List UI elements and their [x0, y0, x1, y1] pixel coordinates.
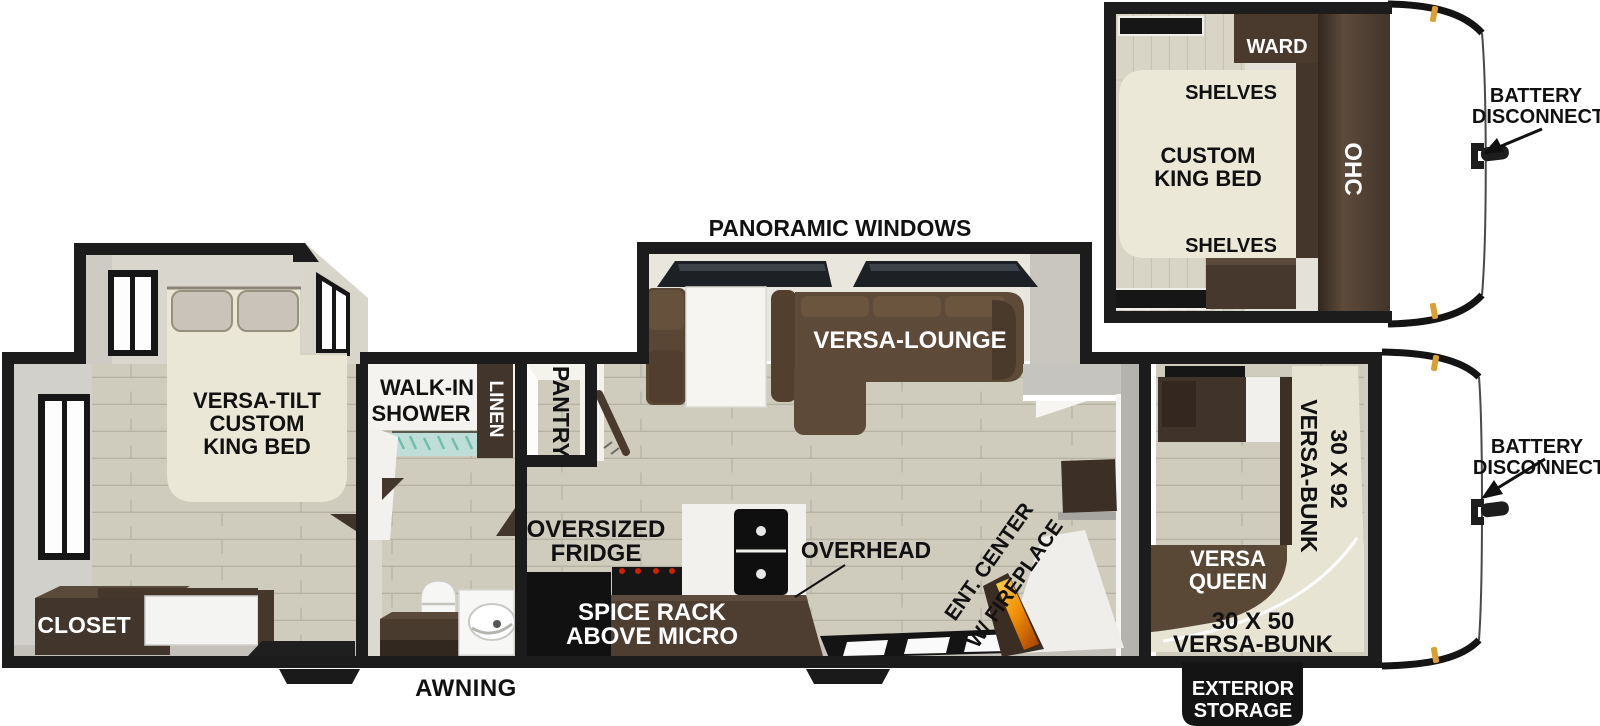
- svg-text:STORAGE: STORAGE: [1194, 700, 1293, 722]
- svg-text:KING BED: KING BED: [1154, 166, 1262, 191]
- svg-text:VERSA-TILT: VERSA-TILT: [193, 388, 321, 413]
- svg-text:PANTRY: PANTRY: [548, 366, 574, 458]
- svg-text:CUSTOM: CUSTOM: [210, 411, 305, 436]
- svg-text:OHC: OHC: [1339, 142, 1366, 195]
- svg-text:SHOWER: SHOWER: [372, 401, 471, 426]
- svg-text:OVERHEAD: OVERHEAD: [801, 537, 931, 563]
- svg-text:CUSTOM: CUSTOM: [1161, 143, 1256, 168]
- svg-text:BATTERY: BATTERY: [1490, 85, 1583, 107]
- svg-text:FRIDGE: FRIDGE: [551, 540, 642, 567]
- svg-text:30 X 92: 30 X 92: [1326, 429, 1352, 508]
- svg-text:WALK-IN: WALK-IN: [380, 375, 474, 400]
- svg-text:SHELVES: SHELVES: [1185, 82, 1277, 104]
- svg-text:OVERSIZED: OVERSIZED: [527, 516, 666, 543]
- svg-text:BATTERY: BATTERY: [1491, 436, 1584, 458]
- svg-text:QUEEN: QUEEN: [1189, 569, 1267, 594]
- svg-text:KING BED: KING BED: [203, 434, 311, 459]
- svg-text:VERSA-LOUNGE: VERSA-LOUNGE: [813, 327, 1006, 354]
- svg-text:DISCONNECT: DISCONNECT: [1473, 457, 1600, 479]
- svg-text:CLOSET: CLOSET: [37, 612, 130, 638]
- svg-text:PANORAMIC WINDOWS: PANORAMIC WINDOWS: [709, 215, 972, 241]
- svg-text:AWNING: AWNING: [415, 675, 517, 702]
- svg-text:SHELVES: SHELVES: [1185, 235, 1277, 257]
- svg-text:LINEN: LINEN: [485, 381, 506, 438]
- svg-text:VERSA-BUNK: VERSA-BUNK: [1173, 631, 1334, 658]
- svg-text:WARD: WARD: [1246, 36, 1307, 58]
- svg-text:EXTERIOR: EXTERIOR: [1192, 678, 1295, 700]
- svg-text:VERSA: VERSA: [1190, 546, 1266, 571]
- svg-text:DISCONNECT: DISCONNECT: [1472, 106, 1600, 128]
- svg-text:ABOVE MICRO: ABOVE MICRO: [566, 623, 738, 650]
- svg-text:SPICE RACK: SPICE RACK: [578, 599, 727, 626]
- svg-text:VERSA-BUNK: VERSA-BUNK: [1296, 399, 1322, 553]
